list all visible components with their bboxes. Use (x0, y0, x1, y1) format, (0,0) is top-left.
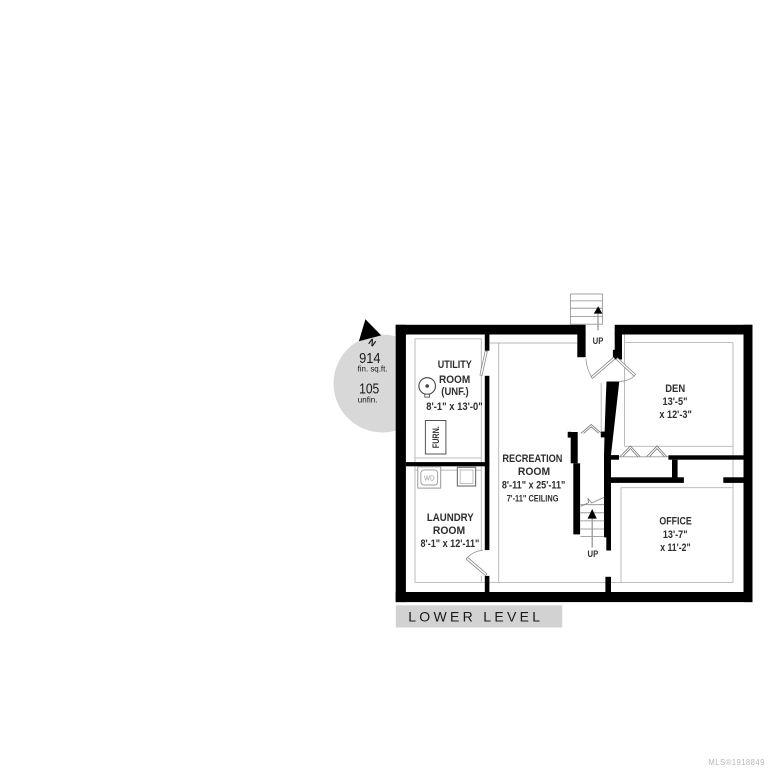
svg-text:8'-1" x 12'-11": 8'-1" x 12'-11" (421, 538, 480, 550)
svg-text:UP: UP (593, 335, 604, 346)
svg-text:FURN.: FURN. (431, 426, 441, 448)
svg-text:13'-7": 13'-7" (663, 529, 688, 541)
svg-text:(UNF.): (UNF.) (441, 386, 468, 398)
svg-text:x 12'-3": x 12'-3" (659, 409, 691, 421)
svg-text:8'-1" x 13'-0": 8'-1" x 13'-0" (426, 401, 483, 413)
svg-text:fin. sq.ft.: fin. sq.ft. (358, 363, 388, 373)
svg-text:ROOM: ROOM (518, 466, 550, 478)
svg-text:UP: UP (588, 548, 599, 559)
svg-text:UTILITY: UTILITY (438, 359, 472, 371)
svg-text:MLS®1918849: MLS®1918849 (708, 758, 764, 767)
svg-text:7'-11" CEILING: 7'-11" CEILING (507, 493, 559, 503)
svg-text:8'-11" x 25'-11": 8'-11" x 25'-11" (502, 479, 566, 491)
svg-text:ROOM: ROOM (433, 525, 465, 537)
svg-text:LAUNDRY: LAUNDRY (427, 512, 474, 524)
svg-text:x 11'-2": x 11'-2" (660, 542, 690, 554)
svg-text:RECREATION: RECREATION (502, 453, 562, 465)
svg-text:OFFICE: OFFICE (659, 516, 691, 528)
svg-text:13'-5": 13'-5" (663, 396, 688, 408)
svg-text:unfin.: unfin. (358, 394, 378, 404)
svg-text:WD: WD (424, 473, 435, 482)
svg-text:DEN: DEN (665, 383, 685, 395)
svg-text:ROOM: ROOM (439, 374, 470, 386)
